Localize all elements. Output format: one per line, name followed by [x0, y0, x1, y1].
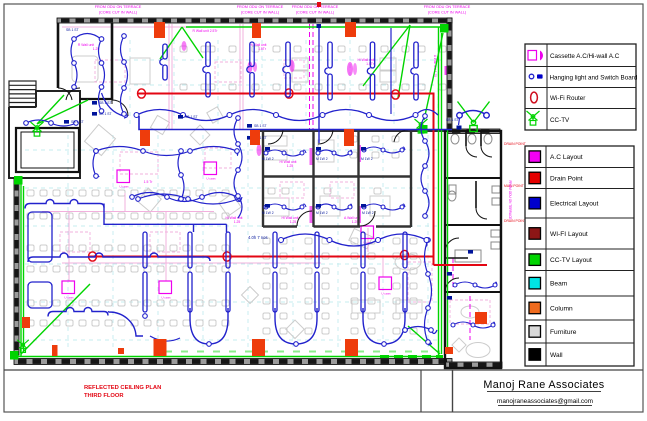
svg-text:FROM ODU ON TERRACE: FROM ODU ON TERRACE [237, 5, 284, 9]
svg-text:DRAIN POINT: DRAIN POINT [504, 219, 526, 223]
svg-text:R Wall unit 2.5Tr: R Wall unit 2.5Tr [193, 29, 219, 33]
svg-text:SB 1 ST: SB 1 ST [99, 112, 112, 116]
svg-text:M 1W 2: M 1W 2 [362, 211, 374, 215]
svg-text:M 1W 2: M 1W 2 [316, 211, 328, 215]
svg-text:M 1W 2: M 1W 2 [262, 211, 274, 215]
svg-text:1.25: 1.25 [290, 220, 297, 224]
svg-text:REFLECTED CEILING PLAN: REFLECTED CEILING PLAN [84, 385, 161, 391]
svg-text:1.25: 1.25 [234, 220, 241, 224]
svg-text:MAIN POINT: MAIN POINT [504, 184, 524, 188]
svg-text:CC-TV Layout: CC-TV Layout [550, 257, 592, 264]
svg-text:Wall: Wall [550, 352, 563, 359]
svg-text:1.5Tr: 1.5Tr [258, 47, 267, 51]
svg-text:CC-TV: CC-TV [550, 117, 570, 124]
svg-text:1.5 Tr: 1.5 Tr [144, 180, 154, 184]
svg-text:SB 1 ST: SB 1 ST [66, 28, 79, 32]
svg-text:U cass: U cass [381, 292, 391, 296]
svg-text:Cassette A.C/Hi-wall A.C: Cassette A.C/Hi-wall A.C [550, 53, 620, 60]
svg-text:SB 1 ST: SB 1 ST [446, 118, 459, 122]
svg-text:Electrical Layout: Electrical Layout [550, 201, 599, 208]
svg-text:4.0h 7 nos: 4.0h 7 nos [248, 235, 268, 240]
svg-text:M 1W 2: M 1W 2 [262, 157, 274, 161]
svg-text:(CORE CUT IN WALL): (CORE CUT IN WALL) [296, 11, 335, 15]
svg-text:WI-FI Layout: WI-FI Layout [550, 231, 588, 238]
svg-text:FROM ODU ON TERRACE: FROM ODU ON TERRACE [508, 180, 512, 219]
svg-text:SB 1 ST: SB 1 ST [71, 120, 84, 124]
svg-text:U cass: U cass [161, 296, 171, 300]
svg-text:DRAIN POINT: DRAIN POINT [504, 142, 526, 146]
svg-text:(CORE CUT IN WALL): (CORE CUT IN WALL) [99, 11, 138, 15]
svg-text:SB 1 ST: SB 1 ST [99, 101, 112, 105]
svg-text:Beam: Beam [550, 281, 568, 288]
svg-text:THIRD FLOOR: THIRD FLOOR [84, 393, 124, 399]
svg-text:Manoj Rane Associates: Manoj Rane Associates [483, 379, 604, 391]
svg-text:Drain Point: Drain Point [550, 175, 583, 182]
svg-text:1.25: 1.25 [287, 164, 294, 168]
svg-text:SB 1 ST: SB 1 ST [254, 124, 267, 128]
svg-text:A.C Layout: A.C Layout [550, 154, 583, 161]
svg-text:(CORE CUT IN WALL): (CORE CUT IN WALL) [428, 11, 467, 15]
svg-text:Hanging light and Switch Board: Hanging light and Switch Board [550, 75, 638, 82]
svg-text:manojraneassociates@gmail.com: manojraneassociates@gmail.com [497, 398, 593, 405]
svg-text:FROM ODU ON TERRACE: FROM ODU ON TERRACE [95, 5, 142, 9]
svg-text:U cass: U cass [206, 177, 216, 181]
svg-text:Column: Column [550, 305, 573, 312]
svg-text:U cass: U cass [64, 296, 74, 300]
svg-text:SB 1 ST: SB 1 ST [185, 115, 198, 119]
svg-text:M 1W 2: M 1W 2 [361, 157, 373, 161]
svg-text:Wi-Fi Router: Wi-Fi Router [550, 95, 585, 102]
svg-text:FROM ODU ON TERRACE: FROM ODU ON TERRACE [424, 5, 471, 9]
svg-text:M 1W 2: M 1W 2 [316, 157, 328, 161]
svg-text:U cass: U cass [119, 185, 129, 189]
svg-text:Furniture: Furniture [550, 329, 577, 336]
svg-text:(CORE CUT IN WALL): (CORE CUT IN WALL) [241, 11, 280, 15]
svg-text:FROM ODU ON TERRACE: FROM ODU ON TERRACE [292, 5, 339, 9]
